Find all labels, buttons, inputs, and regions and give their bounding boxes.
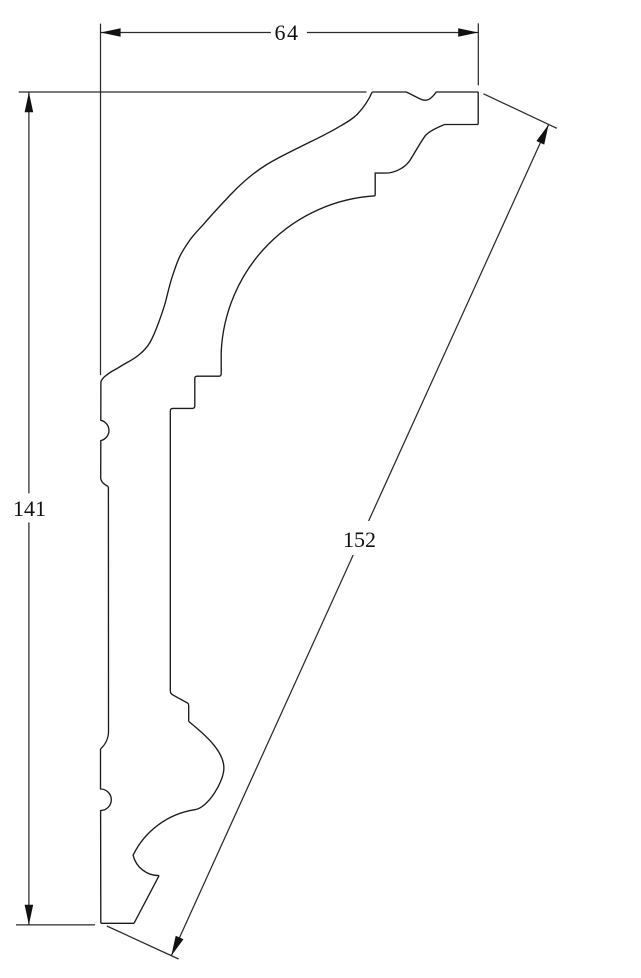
svg-text:64: 64 xyxy=(275,20,300,45)
svg-text:152: 152 xyxy=(343,527,376,552)
svg-text:141: 141 xyxy=(13,496,46,521)
